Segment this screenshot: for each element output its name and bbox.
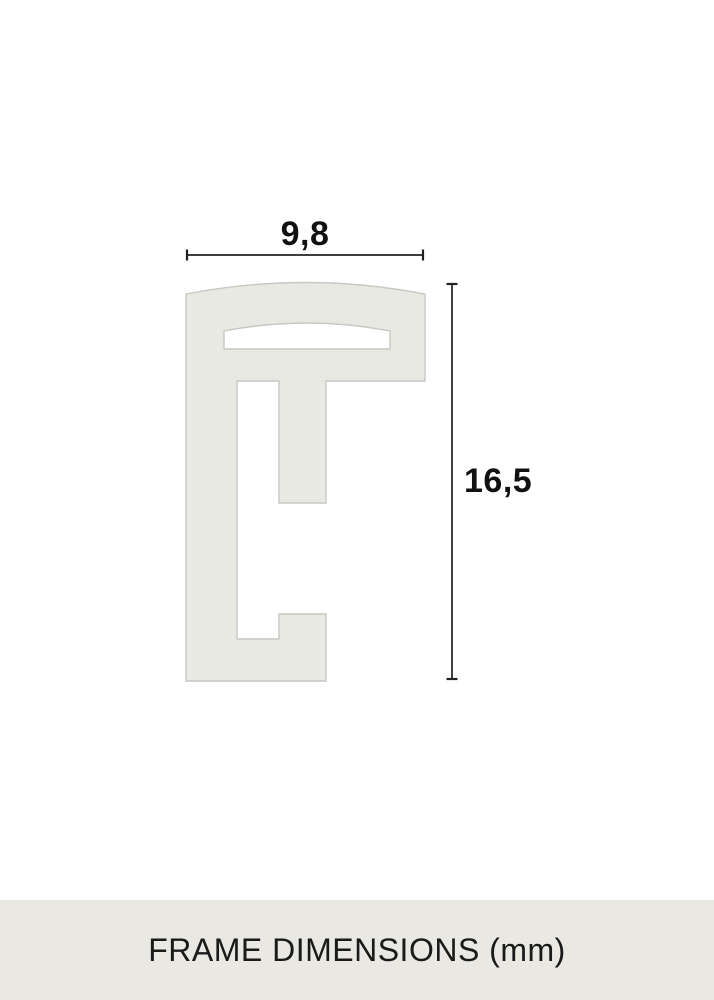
page: 9,8 16,5 FRAME DIMENSIONS (mm)	[0, 0, 714, 1000]
height-dimension-label: 16,5	[464, 464, 532, 498]
frame-profile-shape	[186, 283, 425, 682]
footer-caption: FRAME DIMENSIONS (mm)	[148, 932, 566, 969]
frame-profile-diagram	[0, 0, 714, 1000]
height-dimension	[447, 284, 458, 679]
width-dimension-label: 9,8	[187, 217, 423, 251]
footer-bar: FRAME DIMENSIONS (mm)	[0, 900, 714, 1000]
